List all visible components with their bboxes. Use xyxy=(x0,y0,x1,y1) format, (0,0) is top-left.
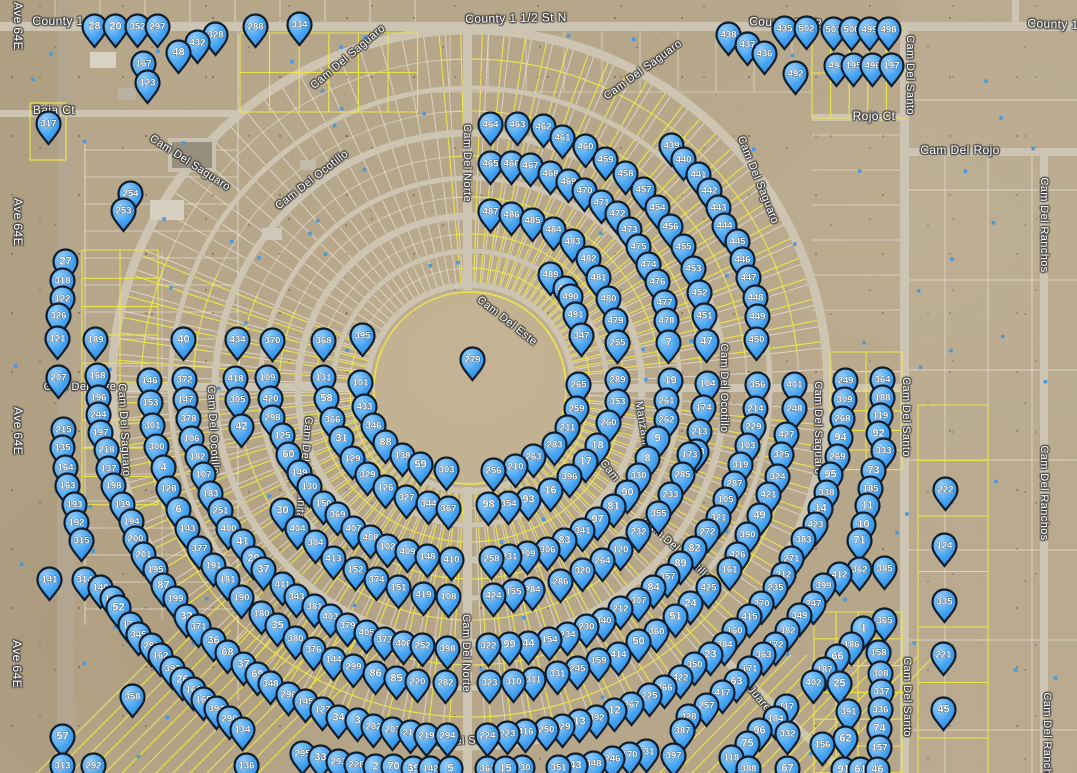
svg-text:154: 154 xyxy=(541,634,558,645)
svg-text:387: 387 xyxy=(674,725,690,736)
map-pin-397[interactable]: 397 xyxy=(660,742,687,773)
svg-text:398: 398 xyxy=(439,643,456,654)
svg-text:502: 502 xyxy=(798,23,814,34)
svg-text:419: 419 xyxy=(415,589,431,600)
svg-text:126: 126 xyxy=(377,482,393,493)
svg-text:449: 449 xyxy=(749,311,765,322)
map-pin-46[interactable]: 46 xyxy=(864,756,891,773)
svg-text:402: 402 xyxy=(805,677,821,688)
svg-text:313: 313 xyxy=(54,760,70,771)
svg-text:315: 315 xyxy=(73,535,90,546)
svg-text:311: 311 xyxy=(525,674,541,685)
svg-text:265: 265 xyxy=(570,379,587,390)
svg-text:174: 174 xyxy=(695,402,712,413)
map-pin-335[interactable]: 335 xyxy=(931,588,958,624)
map-pin-463[interactable]: 463 xyxy=(504,111,531,147)
map-pin-315[interactable]: 315 xyxy=(68,527,95,563)
svg-text:57: 57 xyxy=(56,730,68,742)
map-pin-141[interactable]: 141 xyxy=(36,566,63,602)
svg-text:480: 480 xyxy=(600,293,616,304)
map-pin-424[interactable]: 424 xyxy=(480,582,507,618)
svg-text:388: 388 xyxy=(740,763,757,773)
map-pin-98[interactable]: 98 xyxy=(475,491,502,527)
svg-text:492: 492 xyxy=(787,68,803,79)
svg-text:264: 264 xyxy=(594,555,611,566)
svg-text:121: 121 xyxy=(49,333,66,344)
svg-text:213: 213 xyxy=(691,426,707,437)
svg-text:397: 397 xyxy=(665,750,681,761)
svg-text:47: 47 xyxy=(700,335,712,347)
map-pin-108[interactable]: 108 xyxy=(435,583,462,619)
svg-text:49: 49 xyxy=(753,509,765,521)
svg-text:99: 99 xyxy=(503,638,515,650)
svg-text:279: 279 xyxy=(464,354,480,365)
svg-text:223: 223 xyxy=(499,728,515,739)
svg-text:151: 151 xyxy=(390,582,407,593)
svg-text:40: 40 xyxy=(177,333,189,345)
svg-text:355: 355 xyxy=(650,508,667,519)
svg-text:292: 292 xyxy=(85,760,101,771)
map-pin-256[interactable]: 256 xyxy=(480,457,507,493)
map-pin-40[interactable]: 40 xyxy=(170,326,197,362)
svg-text:108: 108 xyxy=(440,591,457,602)
svg-text:93: 93 xyxy=(522,493,534,505)
svg-text:414: 414 xyxy=(610,649,627,660)
map-pin-123[interactable]: 123 xyxy=(134,69,161,105)
svg-text:173: 173 xyxy=(681,449,697,460)
svg-text:461: 461 xyxy=(554,132,571,143)
svg-text:19: 19 xyxy=(664,374,676,386)
svg-text:148: 148 xyxy=(419,551,436,562)
svg-text:155: 155 xyxy=(505,586,522,597)
svg-text:219: 219 xyxy=(418,730,434,741)
svg-text:253: 253 xyxy=(115,205,131,216)
map-pin-410[interactable]: 410 xyxy=(438,546,465,582)
map-pin-358[interactable]: 358 xyxy=(119,683,146,719)
satellite-map-canvas[interactable]: County 1County 1 1/2 St NCounty 1 1/2 St… xyxy=(0,0,1077,773)
svg-text:353: 353 xyxy=(609,396,625,407)
map-pin-282[interactable]: 282 xyxy=(432,669,459,705)
svg-text:157: 157 xyxy=(871,742,887,753)
svg-text:356: 356 xyxy=(749,379,765,390)
svg-text:6: 6 xyxy=(175,503,181,515)
map-pin-464[interactable]: 464 xyxy=(477,111,504,147)
svg-text:28: 28 xyxy=(88,20,100,32)
svg-text:301: 301 xyxy=(144,420,161,431)
svg-text:374: 374 xyxy=(368,574,385,585)
map-pin-67[interactable]: 67 xyxy=(774,755,801,773)
svg-text:2: 2 xyxy=(372,760,378,772)
svg-text:161: 161 xyxy=(721,564,738,575)
map-pin-388[interactable]: 388 xyxy=(735,755,762,773)
svg-text:476: 476 xyxy=(649,276,665,287)
svg-text:104: 104 xyxy=(699,378,716,389)
svg-text:282: 282 xyxy=(437,677,453,688)
map-pin-313[interactable]: 313 xyxy=(49,752,76,773)
svg-text:255: 255 xyxy=(609,337,626,348)
svg-text:424: 424 xyxy=(485,590,502,601)
svg-text:317: 317 xyxy=(40,118,56,129)
svg-text:418: 418 xyxy=(227,373,244,384)
svg-text:207: 207 xyxy=(50,372,66,383)
svg-text:20: 20 xyxy=(109,20,121,32)
map-pins-layer: 3342820352297288435502501500499498328438… xyxy=(0,0,1077,773)
svg-text:37: 37 xyxy=(257,563,269,575)
svg-text:221: 221 xyxy=(935,649,952,660)
svg-text:323: 323 xyxy=(481,677,497,688)
svg-text:45: 45 xyxy=(937,703,949,715)
map-pin-121[interactable]: 121 xyxy=(44,325,71,361)
svg-text:391: 391 xyxy=(840,706,857,717)
svg-text:146: 146 xyxy=(141,375,157,386)
svg-text:252: 252 xyxy=(414,640,430,651)
svg-text:481: 481 xyxy=(590,272,607,283)
svg-text:289: 289 xyxy=(609,374,625,385)
map-pin-124[interactable]: 124 xyxy=(931,532,958,568)
map-pin-502[interactable]: 502 xyxy=(793,15,820,51)
map-pin-292[interactable]: 292 xyxy=(80,752,107,773)
svg-text:367: 367 xyxy=(440,503,456,514)
svg-text:354: 354 xyxy=(500,498,517,509)
svg-text:16: 16 xyxy=(544,484,556,496)
svg-text:109: 109 xyxy=(259,372,275,383)
svg-text:70: 70 xyxy=(387,760,399,772)
svg-text:401: 401 xyxy=(786,379,803,390)
svg-text:86: 86 xyxy=(369,667,381,679)
map-pin-286[interactable]: 286 xyxy=(547,568,574,604)
svg-text:222: 222 xyxy=(937,484,953,495)
svg-text:463: 463 xyxy=(509,119,525,130)
svg-text:143: 143 xyxy=(179,523,195,534)
map-pin-5[interactable]: 5 xyxy=(437,755,464,773)
map-pin-222[interactable]: 222 xyxy=(932,476,959,512)
svg-text:11: 11 xyxy=(861,499,873,511)
svg-text:385: 385 xyxy=(876,563,893,574)
svg-text:306: 306 xyxy=(539,544,555,555)
svg-text:62: 62 xyxy=(839,732,851,744)
svg-text:152: 152 xyxy=(347,564,363,575)
svg-text:487: 487 xyxy=(482,206,498,217)
svg-text:136: 136 xyxy=(238,760,254,771)
svg-text:15: 15 xyxy=(499,762,511,773)
svg-text:299: 299 xyxy=(345,661,361,672)
map-pin-492[interactable]: 492 xyxy=(782,60,809,96)
svg-text:451: 451 xyxy=(696,310,713,321)
svg-text:486: 486 xyxy=(503,209,519,220)
svg-text:256: 256 xyxy=(485,465,501,476)
map-pin-368[interactable]: 368 xyxy=(310,327,337,363)
svg-text:351: 351 xyxy=(550,762,567,773)
map-pin-48[interactable]: 48 xyxy=(165,39,192,75)
svg-text:44: 44 xyxy=(522,637,535,649)
map-pin-322[interactable]: 322 xyxy=(475,632,502,668)
svg-text:134: 134 xyxy=(234,724,251,735)
svg-text:434: 434 xyxy=(229,334,246,345)
svg-text:421: 421 xyxy=(760,489,777,500)
map-pin-221[interactable]: 221 xyxy=(930,641,957,677)
svg-text:455: 455 xyxy=(675,241,692,252)
map-pin-59[interactable]: 59 xyxy=(407,451,434,487)
svg-text:285: 285 xyxy=(674,469,691,480)
svg-text:320: 320 xyxy=(574,565,590,576)
map-pin-279[interactable]: 279 xyxy=(459,346,486,382)
svg-text:300: 300 xyxy=(148,441,164,452)
map-pin-151[interactable]: 151 xyxy=(385,574,412,610)
map-pin-317[interactable]: 317 xyxy=(35,110,62,146)
svg-text:331: 331 xyxy=(549,668,566,679)
svg-text:447: 447 xyxy=(740,272,756,283)
svg-text:159: 159 xyxy=(590,655,606,666)
svg-text:478: 478 xyxy=(658,315,675,326)
svg-text:25: 25 xyxy=(833,677,845,689)
svg-text:135: 135 xyxy=(54,442,71,453)
svg-text:362: 362 xyxy=(851,564,867,575)
svg-text:450: 450 xyxy=(748,334,764,345)
svg-text:123: 123 xyxy=(139,77,155,88)
svg-text:327: 327 xyxy=(398,492,414,503)
svg-text:479: 479 xyxy=(607,315,623,326)
svg-text:378: 378 xyxy=(180,413,197,424)
map-pin-136[interactable]: 136 xyxy=(233,752,260,773)
svg-text:491: 491 xyxy=(567,309,584,320)
svg-text:42: 42 xyxy=(235,420,247,432)
map-pin-434[interactable]: 434 xyxy=(224,326,251,362)
svg-text:326: 326 xyxy=(50,310,66,321)
map-pin-385[interactable]: 385 xyxy=(871,555,898,591)
svg-text:368: 368 xyxy=(315,335,332,346)
svg-text:435: 435 xyxy=(776,23,793,34)
svg-text:413: 413 xyxy=(325,553,341,564)
map-pin-220[interactable]: 220 xyxy=(404,668,431,704)
map-pin-189[interactable]: 189 xyxy=(82,326,109,362)
svg-text:74: 74 xyxy=(873,722,886,734)
map-pin-367[interactable]: 367 xyxy=(435,495,462,531)
map-pin-419[interactable]: 419 xyxy=(410,581,437,617)
map-pin-252[interactable]: 252 xyxy=(409,632,436,668)
svg-text:9: 9 xyxy=(654,432,660,444)
svg-text:128: 128 xyxy=(160,483,177,494)
svg-text:485: 485 xyxy=(524,215,541,226)
svg-text:456: 456 xyxy=(662,221,678,232)
map-pin-347[interactable]: 347 xyxy=(568,322,595,358)
map-pin-351[interactable]: 351 xyxy=(545,754,572,773)
svg-text:5: 5 xyxy=(447,762,453,773)
svg-text:283: 283 xyxy=(546,439,562,450)
svg-text:158: 158 xyxy=(870,647,887,658)
svg-text:332: 332 xyxy=(779,728,795,739)
svg-text:245: 245 xyxy=(569,663,586,674)
svg-text:168: 168 xyxy=(89,370,106,381)
svg-text:286: 286 xyxy=(552,576,568,587)
svg-text:31: 31 xyxy=(335,432,347,444)
map-pin-288[interactable]: 288 xyxy=(242,13,269,49)
svg-text:101: 101 xyxy=(352,377,369,388)
svg-text:71: 71 xyxy=(853,534,865,546)
map-pin-148[interactable]: 148 xyxy=(414,543,441,579)
svg-text:220: 220 xyxy=(409,676,425,687)
svg-text:156: 156 xyxy=(814,739,830,750)
map-pin-294[interactable]: 294 xyxy=(434,722,461,758)
svg-text:303: 303 xyxy=(438,464,454,475)
svg-text:131: 131 xyxy=(315,372,332,383)
svg-text:305: 305 xyxy=(229,394,246,405)
map-pin-253[interactable]: 253 xyxy=(110,197,137,233)
svg-text:85: 85 xyxy=(390,672,402,684)
svg-text:12: 12 xyxy=(608,704,620,716)
svg-text:325: 325 xyxy=(773,449,790,460)
svg-text:370: 370 xyxy=(264,335,280,346)
svg-text:260: 260 xyxy=(600,417,616,428)
svg-text:94: 94 xyxy=(834,431,847,443)
svg-text:210: 210 xyxy=(507,461,523,472)
svg-text:58: 58 xyxy=(320,392,332,404)
svg-text:141: 141 xyxy=(41,574,58,585)
svg-text:453: 453 xyxy=(685,263,701,274)
svg-text:358: 358 xyxy=(124,691,141,702)
svg-text:427: 427 xyxy=(778,429,794,440)
svg-text:334: 334 xyxy=(291,19,308,30)
svg-text:258: 258 xyxy=(483,553,500,564)
map-pin-42[interactable]: 42 xyxy=(228,413,255,449)
svg-text:67: 67 xyxy=(781,762,793,773)
svg-text:310: 310 xyxy=(505,676,521,687)
svg-text:197: 197 xyxy=(883,60,899,71)
svg-text:250: 250 xyxy=(538,724,554,735)
svg-text:224: 224 xyxy=(479,730,496,741)
map-pin-7[interactable]: 7 xyxy=(655,329,682,365)
svg-text:124: 124 xyxy=(936,540,953,551)
svg-text:4: 4 xyxy=(160,461,167,473)
svg-text:436: 436 xyxy=(756,48,772,59)
svg-text:297: 297 xyxy=(149,21,165,32)
svg-text:27: 27 xyxy=(59,255,71,267)
svg-text:98: 98 xyxy=(482,498,494,510)
map-pin-334[interactable]: 334 xyxy=(286,11,313,47)
svg-text:46: 46 xyxy=(871,763,883,773)
svg-text:288: 288 xyxy=(247,21,264,32)
map-pin-436[interactable]: 436 xyxy=(751,40,778,76)
svg-text:465: 465 xyxy=(482,158,499,169)
map-pin-258[interactable]: 258 xyxy=(478,545,505,581)
svg-text:153: 153 xyxy=(142,397,158,408)
map-pin-395[interactable]: 395 xyxy=(349,322,376,358)
map-pin-134[interactable]: 134 xyxy=(229,716,256,752)
svg-text:248: 248 xyxy=(786,403,803,414)
map-pin-331[interactable]: 331 xyxy=(544,660,571,696)
svg-text:498: 498 xyxy=(880,24,897,35)
svg-text:464: 464 xyxy=(482,119,499,130)
svg-text:365: 365 xyxy=(876,615,893,626)
svg-text:7: 7 xyxy=(665,336,671,348)
map-pin-310[interactable]: 310 xyxy=(500,668,527,704)
svg-text:372: 372 xyxy=(176,374,192,385)
map-pin-303[interactable]: 303 xyxy=(433,456,460,492)
svg-text:48: 48 xyxy=(172,46,184,58)
svg-text:333: 333 xyxy=(875,445,891,456)
svg-text:390: 390 xyxy=(739,529,755,540)
map-pin-402[interactable]: 402 xyxy=(800,669,827,705)
map-pin-323[interactable]: 323 xyxy=(476,669,503,705)
map-pin-224[interactable]: 224 xyxy=(474,722,501,758)
svg-text:294: 294 xyxy=(439,730,456,741)
svg-text:347: 347 xyxy=(573,330,589,341)
map-pin-370[interactable]: 370 xyxy=(259,327,286,363)
svg-text:452: 452 xyxy=(691,287,707,298)
map-pin-398[interactable]: 398 xyxy=(434,635,461,671)
map-pin-197[interactable]: 197 xyxy=(878,52,905,88)
map-pin-332[interactable]: 332 xyxy=(774,720,801,756)
svg-text:59: 59 xyxy=(414,458,426,470)
map-pin-498[interactable]: 498 xyxy=(875,16,902,52)
svg-text:335: 335 xyxy=(936,596,953,607)
map-pin-15[interactable]: 15 xyxy=(492,755,519,773)
svg-text:51: 51 xyxy=(669,610,681,622)
map-pin-47[interactable]: 47 xyxy=(693,328,720,364)
map-pin-255[interactable]: 255 xyxy=(604,329,631,365)
svg-text:395: 395 xyxy=(354,330,371,341)
svg-text:410: 410 xyxy=(443,554,459,565)
map-pin-207[interactable]: 207 xyxy=(45,364,72,400)
map-pin-450[interactable]: 450 xyxy=(743,326,770,362)
svg-text:322: 322 xyxy=(480,640,496,651)
map-pin-45[interactable]: 45 xyxy=(930,696,957,732)
svg-text:189: 189 xyxy=(87,334,103,345)
svg-text:50: 50 xyxy=(632,635,644,647)
